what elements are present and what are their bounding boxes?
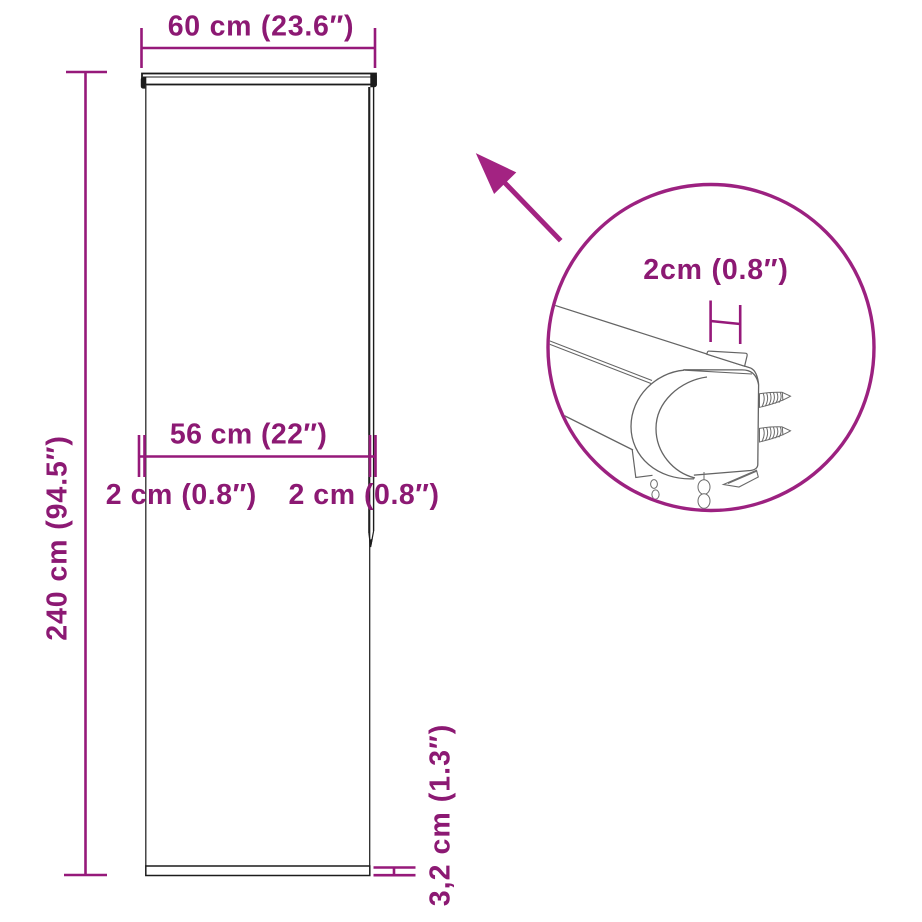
svg-text:240 cm (94.5″): 240 cm (94.5″) [42, 435, 74, 641]
svg-text:2cm (0.8″): 2cm (0.8″) [643, 254, 788, 286]
svg-text:2 cm (0.8″): 2 cm (0.8″) [106, 479, 257, 511]
svg-text:2 cm (0.8″): 2 cm (0.8″) [288, 479, 439, 511]
svg-text:60 cm (23.6″): 60 cm (23.6″) [168, 11, 355, 43]
svg-text:3,2 cm (1.3″): 3,2 cm (1.3″) [425, 724, 457, 907]
svg-text:56 cm (22″): 56 cm (22″) [170, 419, 327, 451]
